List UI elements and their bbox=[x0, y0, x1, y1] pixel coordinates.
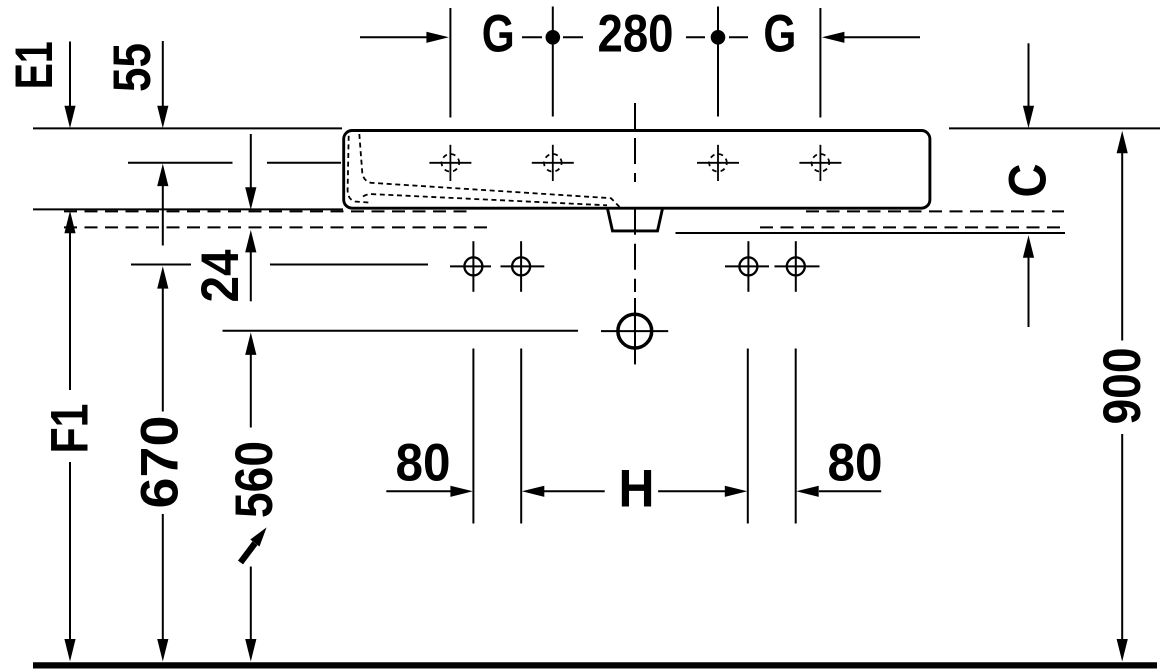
svg-text:55: 55 bbox=[103, 43, 162, 92]
svg-text:560: 560 bbox=[225, 441, 284, 518]
svg-text:280: 280 bbox=[598, 5, 674, 64]
svg-text:H: H bbox=[619, 460, 655, 519]
svg-text:80: 80 bbox=[828, 434, 883, 493]
svg-text:C: C bbox=[999, 164, 1058, 198]
svg-text:F1: F1 bbox=[41, 404, 100, 454]
svg-text:G: G bbox=[763, 5, 796, 64]
svg-text:900: 900 bbox=[1093, 348, 1152, 425]
svg-text:G: G bbox=[482, 5, 515, 64]
svg-text:670: 670 bbox=[131, 416, 190, 509]
svg-text:80: 80 bbox=[396, 434, 451, 493]
svg-text:24: 24 bbox=[191, 249, 250, 302]
svg-text:E1: E1 bbox=[5, 41, 64, 89]
